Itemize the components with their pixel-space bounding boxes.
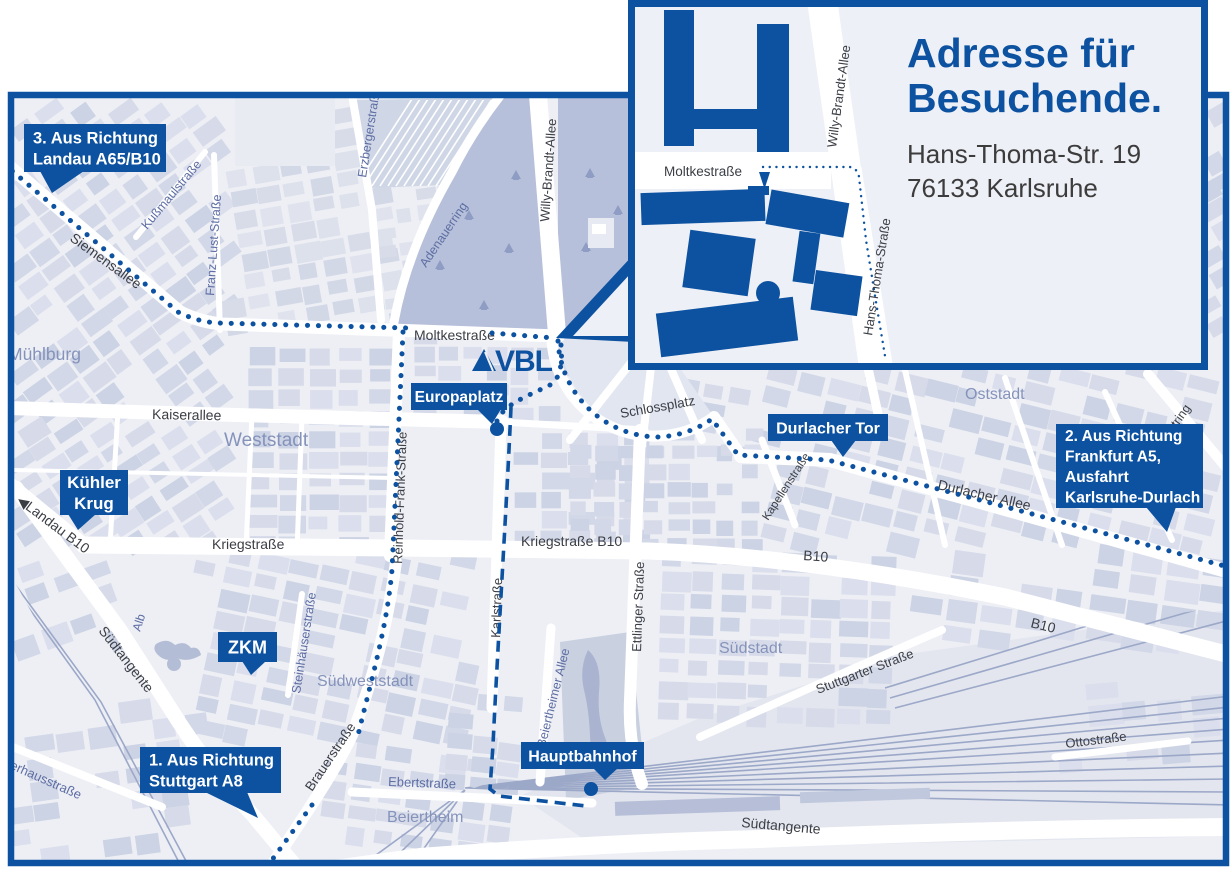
svg-text:Südweststadt: Südweststadt [317,673,414,690]
svg-text:Adresse für: Adresse für [907,30,1135,76]
svg-text:Kühler: Kühler [67,473,121,492]
svg-text:ZKM: ZKM [228,638,267,658]
svg-text:76133 Karlsruhe: 76133 Karlsruhe [907,173,1098,203]
svg-text:Krug: Krug [74,494,114,513]
svg-text:Ebertstraße: Ebertstraße [388,774,456,791]
svg-text:Ausfahrt: Ausfahrt [1065,469,1129,486]
svg-text:Südstadt: Südstadt [719,640,783,657]
svg-text:Moltkestraße: Moltkestraße [414,327,495,343]
svg-text:Hauptbahnhof: Hauptbahnhof [528,748,637,765]
svg-text:Moltkestraße: Moltkestraße [664,164,742,179]
svg-text:Weststadt: Weststadt [224,430,309,451]
svg-text:Europaplatz: Europaplatz [415,389,504,406]
svg-text:Frankfurt A5,: Frankfurt A5, [1065,448,1161,465]
svg-text:Oststadt: Oststadt [965,386,1025,403]
svg-text:Ettlinger Straße: Ettlinger Straße [629,561,647,652]
svg-text:3. Aus Richtung: 3. Aus Richtung [33,129,158,147]
svg-text:Karlsruhe-Durlach: Karlsruhe-Durlach [1065,489,1200,506]
svg-text:Beiertheim: Beiertheim [387,809,463,826]
svg-text:Karlstraße: Karlstraße [488,578,505,638]
svg-text:Durlacher Tor: Durlacher Tor [776,420,880,437]
svg-text:Kaiserallee: Kaiserallee [152,406,222,423]
svg-text:VBL: VBL [495,345,553,378]
svg-text:Landau A65/B10: Landau A65/B10 [33,150,161,168]
svg-text:Kriegstraße: Kriegstraße [212,536,285,552]
svg-text:Stuttgart A8: Stuttgart A8 [149,772,243,790]
svg-text:B10: B10 [803,547,829,565]
svg-text:Besuchende.: Besuchende. [907,75,1162,121]
svg-text:Mühlburg: Mühlburg [8,344,81,364]
svg-text:Hans-Thoma-Str. 19: Hans-Thoma-Str. 19 [907,139,1141,169]
svg-text:1. Aus Richtung: 1. Aus Richtung [149,751,274,769]
svg-text:Kriegstraße B10: Kriegstraße B10 [521,533,622,549]
svg-text:2. Aus Richtung: 2. Aus Richtung [1065,428,1182,445]
